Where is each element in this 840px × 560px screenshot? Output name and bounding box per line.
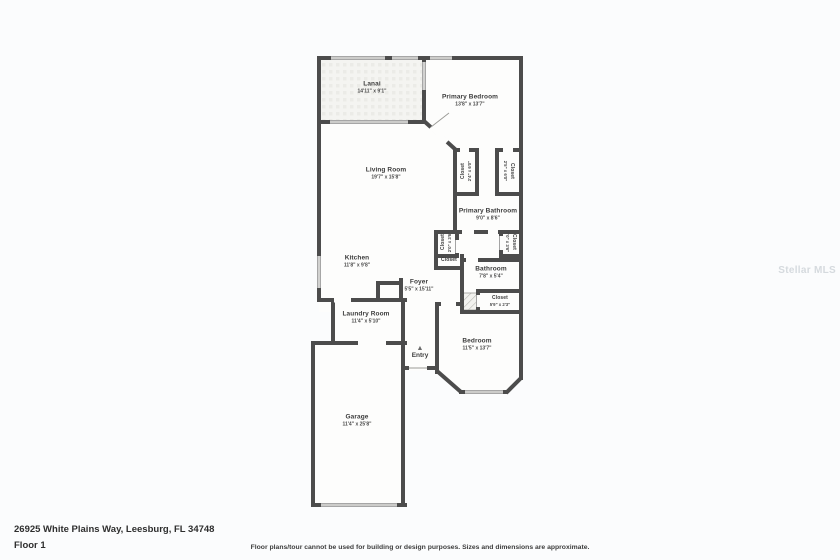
room-label-primary-bedroom: Primary Bedroom 13'8" x 13'7" [442, 94, 498, 109]
room-label-foyer: Foyer 5'5" x 15'11" [404, 279, 433, 294]
entry-door [409, 366, 427, 371]
floor-label: Floor 1 [14, 540, 46, 551]
shower-hatch [462, 293, 478, 310]
room-label-closet-primary-left: Closet 2'4" x 6'0" [460, 161, 472, 181]
room-label-bedroom: Bedroom 11'5" x 13'7" [462, 338, 491, 353]
room-label-closet-small-right: Closet 2'0" x 3'6" [505, 232, 517, 252]
room-label-lanai: Lanai 14'11" x 9'1" [357, 81, 386, 96]
garage-door [321, 504, 397, 507]
entry-label: Entry [412, 352, 429, 359]
room-label-primary-bathroom: Primary Bathroom 9'0" x 8'6" [459, 208, 517, 223]
mls-watermark: Stellar MLS [778, 265, 836, 276]
disclaimer-text: Floor plans/tour cannot be used for buil… [251, 544, 590, 551]
entry-arrow-icon: ▲ [412, 345, 429, 352]
room-label-closet-hall: Closet [441, 257, 457, 264]
room-label-kitchen: Kitchen 11'8" x 9'8" [344, 255, 370, 270]
room-label-closet-bathroom: Closet 5'9" x 2'3" [490, 295, 510, 307]
room-label-closet-small-left: Closet 2'0" x 3'6" [440, 232, 452, 252]
room-label-garage: Garage 11'4" x 25'8" [342, 414, 371, 429]
property-address: 26925 White Plains Way, Leesburg, FL 347… [14, 524, 214, 535]
entry-marker: ▲ Entry [412, 345, 429, 359]
room-label-laundry-room: Laundry Room 11'4" x 5'10" [342, 311, 389, 326]
room-label-living-room: Living Room 19'7" x 15'8" [366, 167, 406, 182]
room-label-closet-primary-right: Closet 2'5" x 6'0" [503, 161, 515, 181]
floor-plan-page: Lanai 14'11" x 9'1" Primary Bedroom 13'8… [0, 0, 840, 560]
room-label-bathroom: Bathroom 7'8" x 5'4" [475, 266, 507, 281]
